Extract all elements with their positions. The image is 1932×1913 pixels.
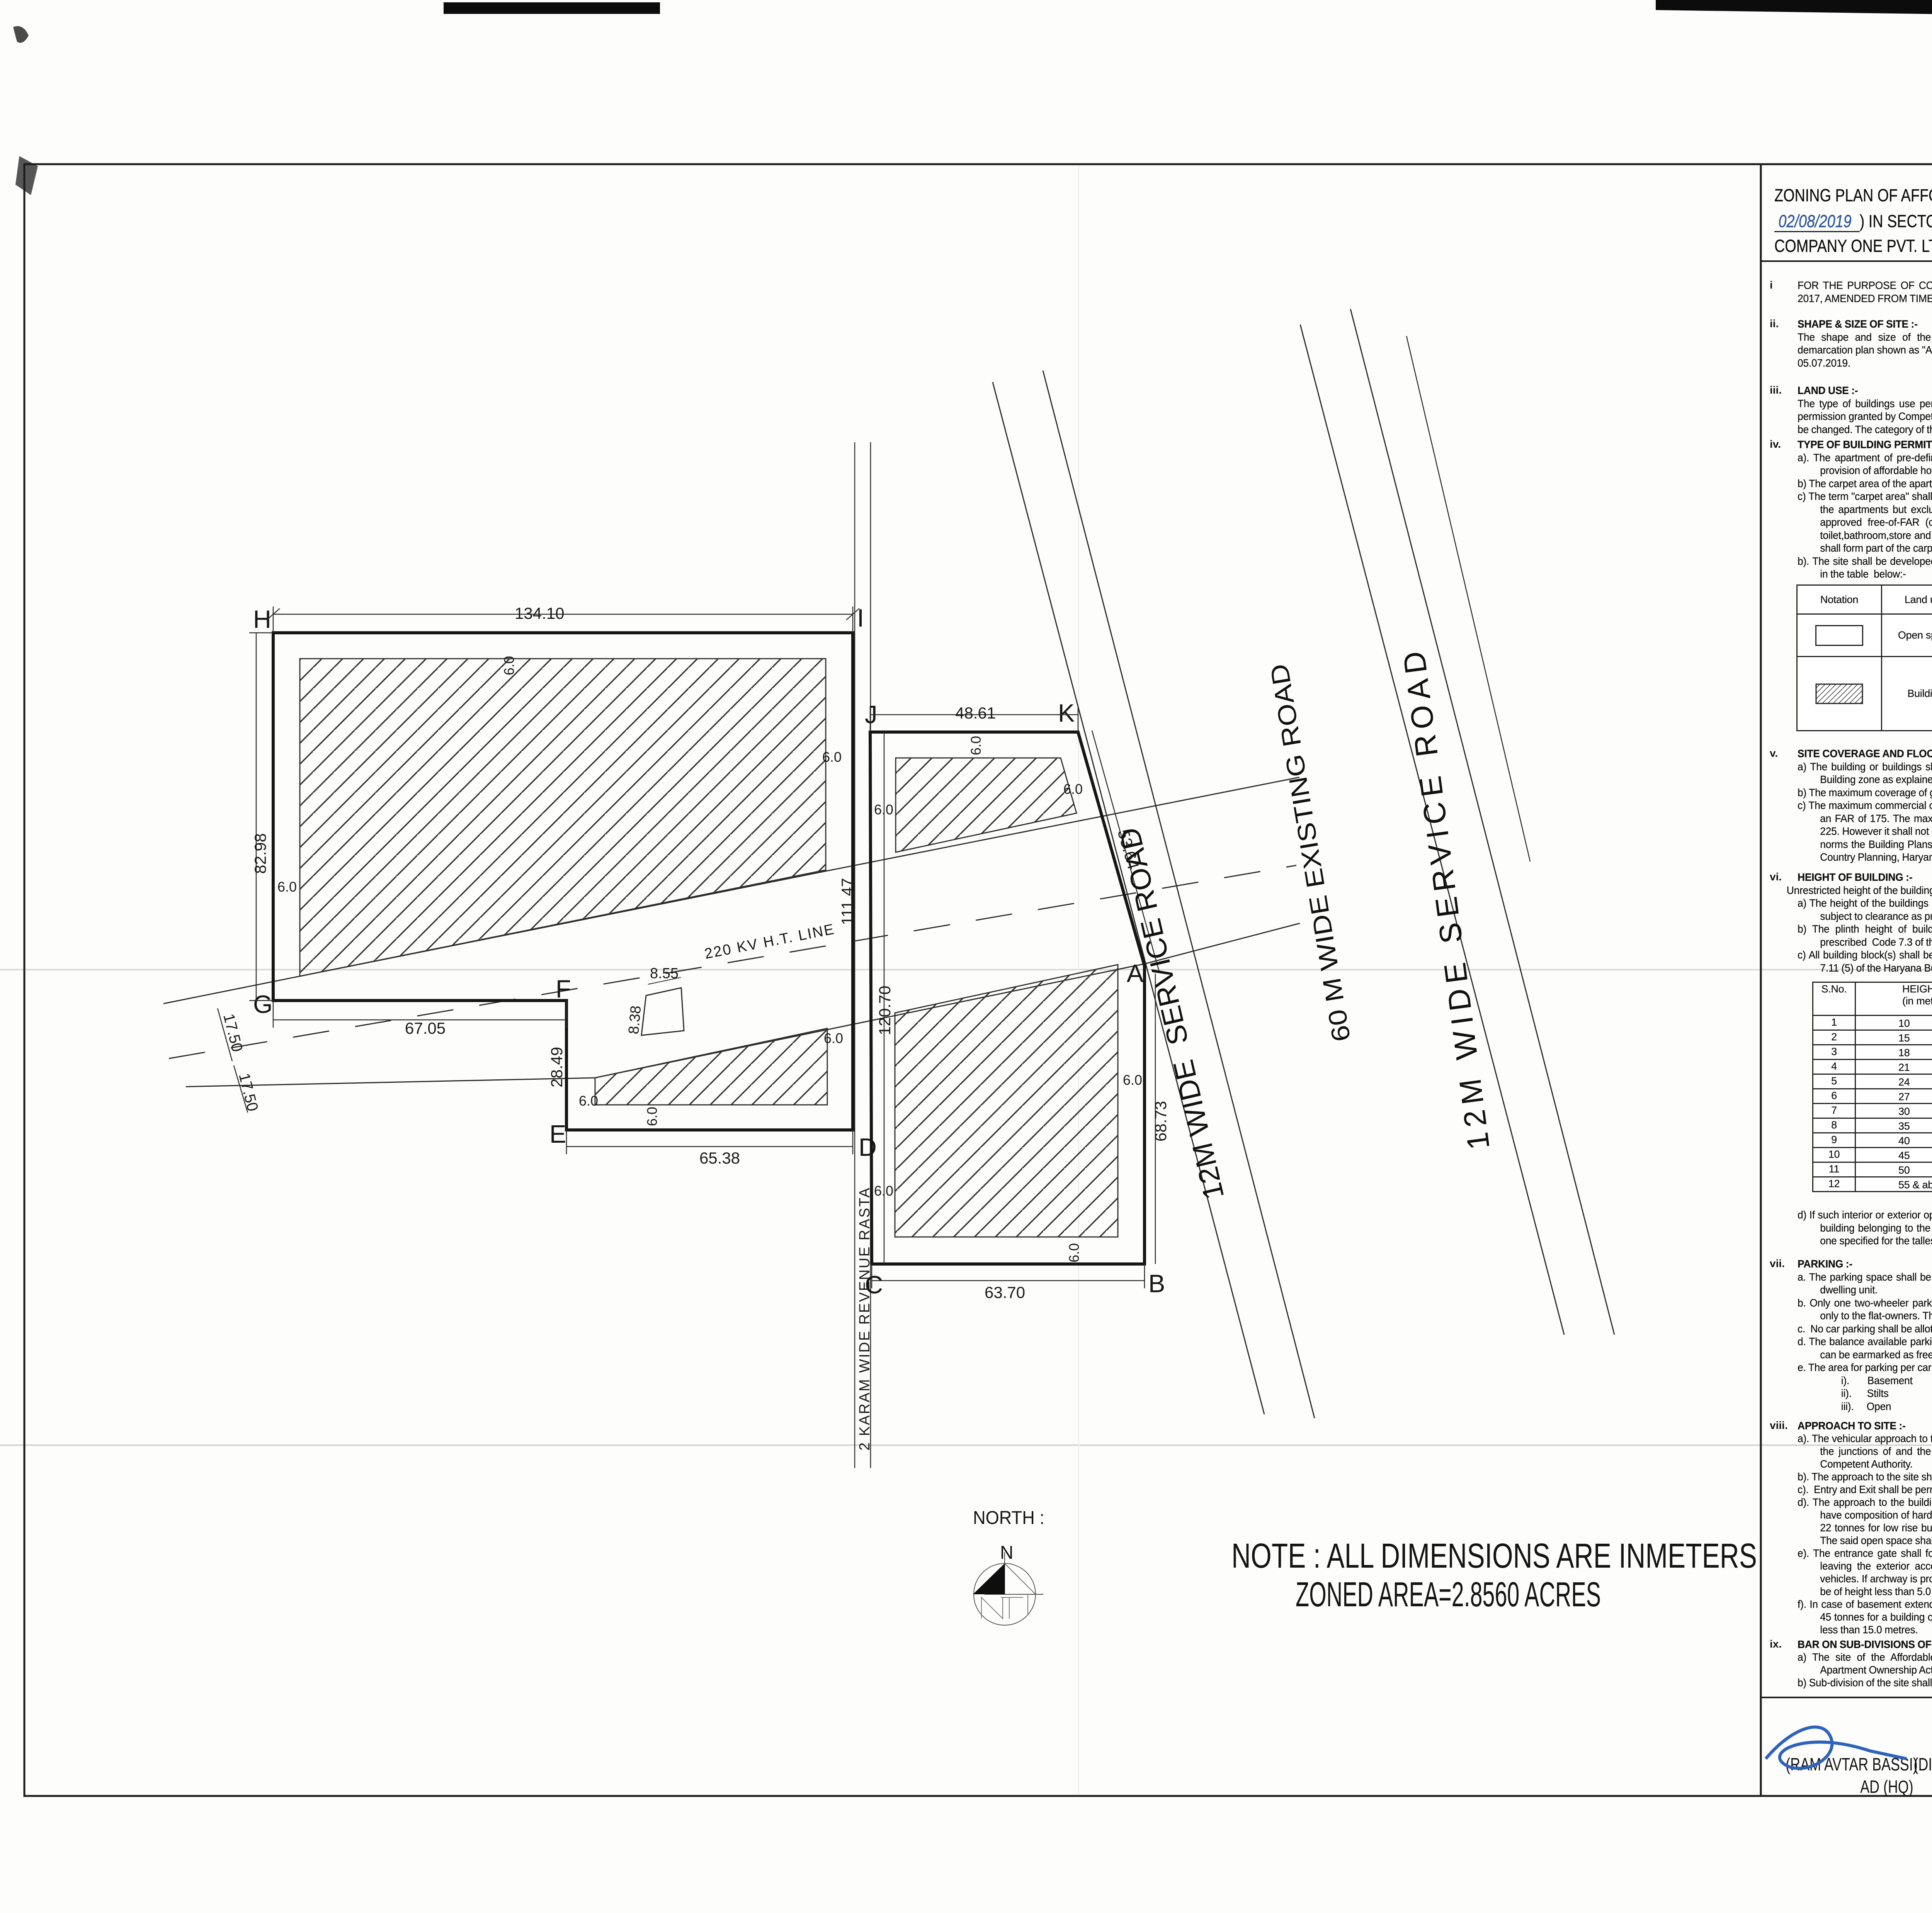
svg-text:D: D xyxy=(859,1133,877,1161)
svg-text:6.0: 6.0 xyxy=(822,749,842,765)
svg-text:6.0: 6.0 xyxy=(579,1093,598,1109)
svg-text:I: I xyxy=(857,604,864,632)
svg-text:68.73: 68.73 xyxy=(1151,1101,1170,1142)
svg-text:B: B xyxy=(1148,1269,1165,1298)
svg-text:111.47: 111.47 xyxy=(838,878,856,925)
svg-text:E: E xyxy=(549,1120,566,1148)
svg-text:K: K xyxy=(1058,699,1075,727)
svg-text:NORTH :: NORTH : xyxy=(973,1508,1044,1528)
svg-text:17.50: 17.50 xyxy=(235,1072,261,1113)
svg-text:63.70: 63.70 xyxy=(985,1283,1025,1301)
svg-text:6.0: 6.0 xyxy=(874,802,893,817)
svg-text:NOTE : ALL DIMENSIONS ARE INME: NOTE : ALL DIMENSIONS ARE INMETERS xyxy=(1231,1537,1757,1575)
svg-text:6.0: 6.0 xyxy=(824,1030,843,1046)
svg-text:65.38: 65.38 xyxy=(699,1149,740,1167)
svg-text:C: C xyxy=(865,1271,883,1299)
svg-text:A: A xyxy=(1127,959,1144,987)
svg-text:8.55: 8.55 xyxy=(650,965,679,982)
svg-text:82.98: 82.98 xyxy=(251,833,269,874)
svg-text:12M WIDE SERVICE ROAD: 12M WIDE SERVICE ROAD xyxy=(1396,649,1496,1152)
svg-text:6.0: 6.0 xyxy=(501,656,517,675)
svg-text:6.0: 6.0 xyxy=(277,879,297,895)
svg-text:120.70: 120.70 xyxy=(876,986,894,1035)
svg-text:67.05: 67.05 xyxy=(405,1019,446,1037)
svg-text:6.0: 6.0 xyxy=(1063,781,1083,797)
svg-text:H: H xyxy=(253,605,271,633)
svg-text:28.49: 28.49 xyxy=(548,1047,566,1087)
svg-text:F: F xyxy=(556,975,571,1003)
svg-text:6.0: 6.0 xyxy=(1066,1243,1082,1262)
svg-text:6.0: 6.0 xyxy=(874,1183,893,1199)
svg-text:48.61: 48.61 xyxy=(955,704,996,722)
svg-text:8.38: 8.38 xyxy=(626,1005,644,1035)
svg-text:220 KV H.T. LINE: 220 KV H.T. LINE xyxy=(703,921,835,962)
svg-text:6.0: 6.0 xyxy=(968,736,984,755)
svg-text:134.10: 134.10 xyxy=(515,604,564,622)
svg-text:6.0: 6.0 xyxy=(644,1107,660,1126)
svg-text:60 M WIDE EXISTING ROAD: 60 M WIDE EXISTING ROAD xyxy=(1264,662,1355,1044)
svg-text:6.0: 6.0 xyxy=(1123,1072,1142,1088)
svg-text:N: N xyxy=(1000,1543,1014,1563)
svg-text:12M WIDE SERVICE ROAD: 12M WIDE SERVICE ROAD xyxy=(1113,825,1230,1203)
svg-text:ZONED AREA=2.8560 ACRES: ZONED AREA=2.8560 ACRES xyxy=(1296,1575,1601,1614)
